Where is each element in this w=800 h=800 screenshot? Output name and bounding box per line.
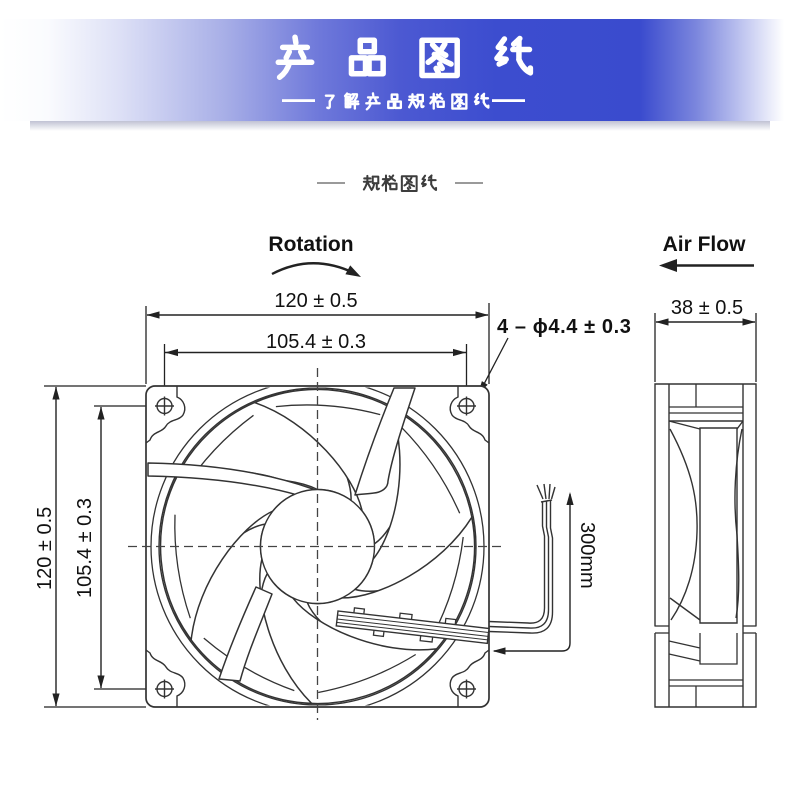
svg-text:4 – ϕ4.4 ± 0.3: 4 – ϕ4.4 ± 0.3 (497, 316, 631, 338)
svg-text:38 ± 0.5: 38 ± 0.5 (671, 297, 743, 319)
svg-text:105.4 ± 0.3: 105.4 ± 0.3 (266, 331, 366, 353)
svg-text:120 ± 0.5: 120 ± 0.5 (34, 507, 56, 590)
svg-text:300mm: 300mm (576, 522, 598, 589)
svg-text:120 ± 0.5: 120 ± 0.5 (274, 290, 357, 312)
svg-text:Rotation: Rotation (268, 233, 353, 256)
svg-text:105.4 ± 0.3: 105.4 ± 0.3 (74, 498, 96, 598)
svg-text:Air Flow: Air Flow (663, 233, 746, 256)
